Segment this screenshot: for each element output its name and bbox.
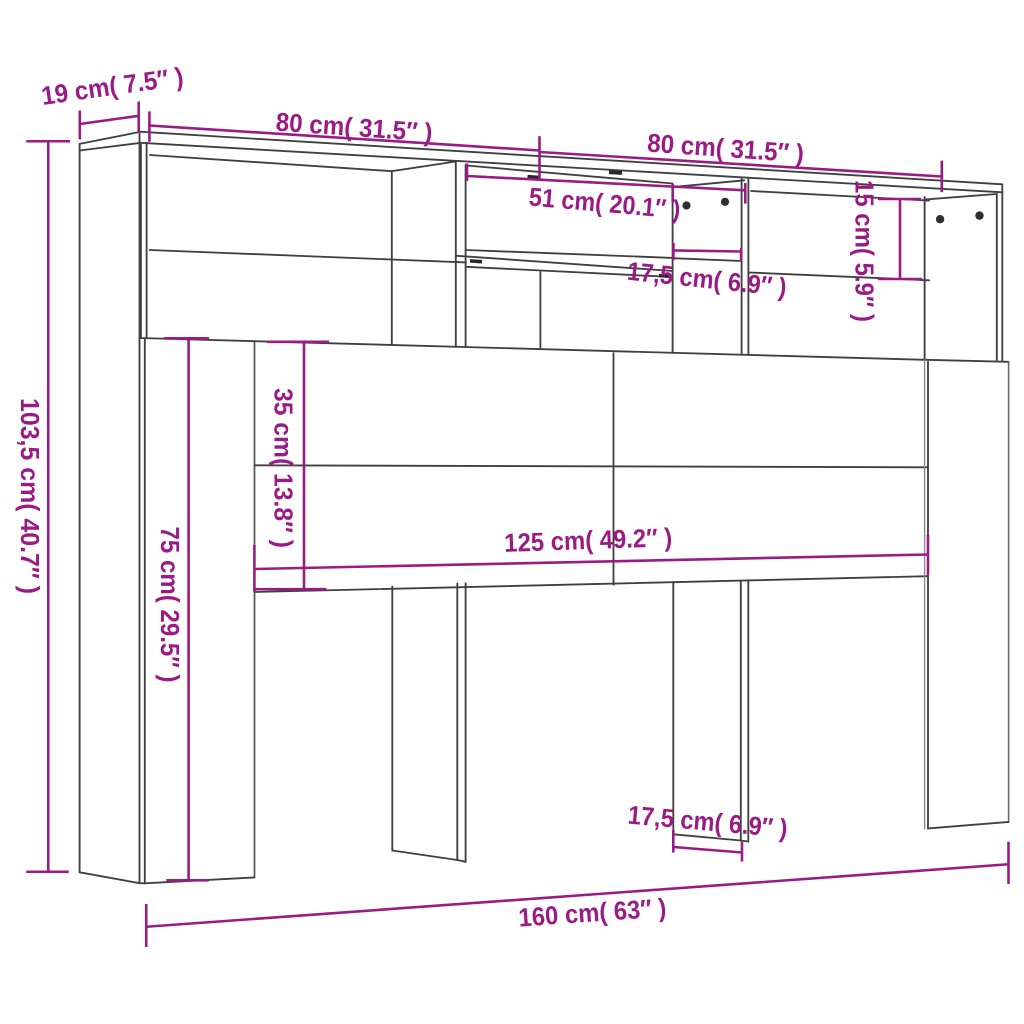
svg-text:75 cm( 29.5″ ): 75 cm( 29.5″ ) <box>155 527 185 683</box>
svg-text:35 cm( 13.8″ ): 35 cm( 13.8″ ) <box>269 388 299 548</box>
svg-text:103,5 cm( 40.7″ ): 103,5 cm( 40.7″ ) <box>15 398 45 594</box>
svg-text:125 cm( 49.2″ ): 125 cm( 49.2″ ) <box>504 522 673 558</box>
svg-text:15 cm( 5.9″ ): 15 cm( 5.9″ ) <box>850 180 880 322</box>
